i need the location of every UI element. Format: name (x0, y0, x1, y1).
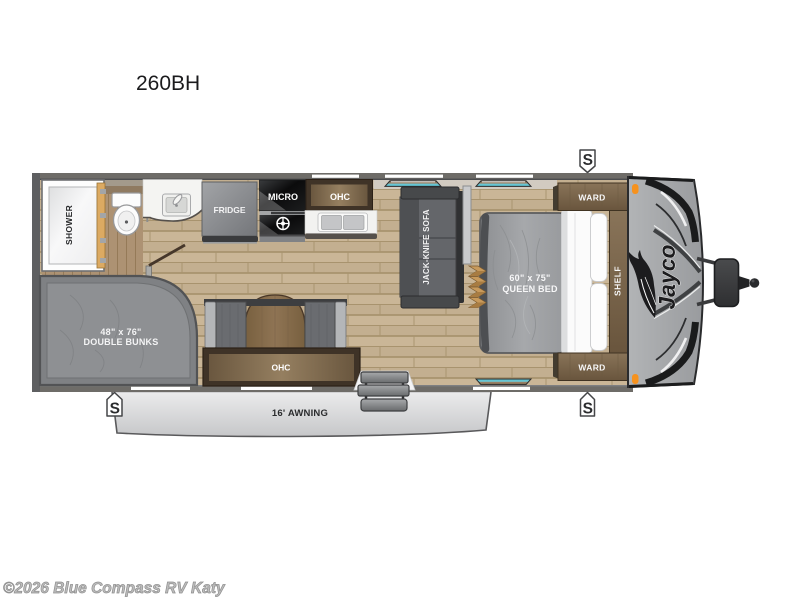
svg-text:WARD: WARD (578, 363, 605, 373)
svg-text:FRIDGE: FRIDGE (213, 205, 245, 215)
svg-text:JACK-KNIFE SOFA: JACK-KNIFE SOFA (422, 209, 431, 284)
svg-text:48" x 76": 48" x 76" (100, 327, 141, 337)
svg-text:Jayco: Jayco (654, 244, 680, 309)
svg-text:60" x 75": 60" x 75" (509, 273, 550, 283)
svg-text:MICRO: MICRO (268, 192, 298, 202)
svg-text:OHC: OHC (272, 363, 291, 373)
svg-text:WARD: WARD (578, 193, 605, 203)
svg-text:SHOWER: SHOWER (64, 205, 74, 245)
svg-text:DOUBLE BUNKS: DOUBLE BUNKS (84, 337, 159, 347)
svg-text:S: S (583, 401, 593, 418)
svg-text:S: S (110, 401, 120, 418)
svg-text:OHC: OHC (330, 192, 351, 202)
svg-text:QUEEN BED: QUEEN BED (502, 284, 558, 294)
svg-text:SHELF: SHELF (613, 266, 623, 296)
svg-text:16' AWNING: 16' AWNING (272, 408, 328, 419)
svg-text:S: S (583, 152, 593, 169)
